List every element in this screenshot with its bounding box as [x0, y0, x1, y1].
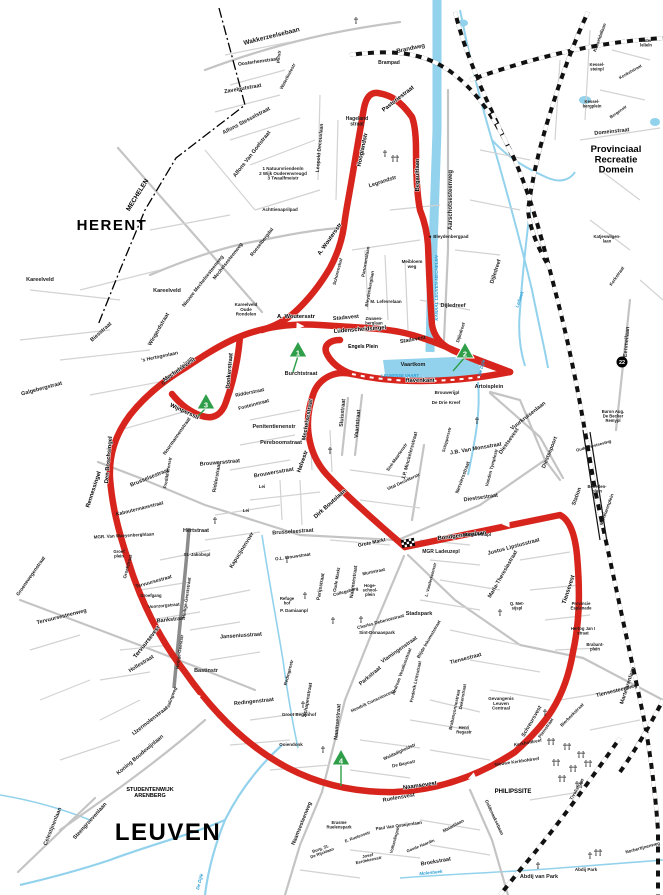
- map-label: IJzermolenstraat: [131, 705, 169, 737]
- map-label: Leibeek: [514, 290, 525, 308]
- church-cross-icon: †: [359, 614, 363, 624]
- map-label: Kaboutermansstraat: [115, 500, 164, 518]
- church-cross-icon: ††: [552, 757, 560, 767]
- map-label: Penitentienenstr: [252, 424, 296, 430]
- map-label: Groot Begijnhof: [282, 712, 317, 717]
- map-label: Brabant-plein: [586, 642, 604, 652]
- map-label: Mechelsevest: [162, 357, 196, 384]
- map-label: Burchtstraat: [285, 371, 318, 377]
- map-label: Dijledreef: [489, 259, 503, 285]
- map-label: Celestijnenlaan: [43, 806, 64, 846]
- church-cross-icon: ††: [558, 773, 566, 783]
- map-label: Hendrik Consciencestr: [350, 688, 397, 713]
- church-cross-icon: †: [588, 850, 592, 860]
- map-label: P. Damiaanpl: [280, 608, 308, 613]
- map-label: Vanden Tymplestr: [484, 448, 499, 487]
- map-label: Waterlindestr: [279, 62, 297, 90]
- church-cross-icon: †: [543, 707, 547, 717]
- map-label: Dijledreef: [440, 303, 465, 309]
- map-label: Hoge-school-plein: [363, 583, 378, 597]
- map-label: putstr: [275, 50, 282, 64]
- map-label: Halvestr: [296, 449, 310, 473]
- map-label: Groefplein: [113, 549, 125, 559]
- map-label: Kerkhofdreef: [514, 738, 543, 748]
- map-label: Zwanen-berglaan: [365, 316, 383, 326]
- map-label: Janseniusstraat: [220, 632, 262, 641]
- map-label: M. Lefevrelaan: [370, 299, 402, 304]
- map-label: Lei: [259, 484, 266, 489]
- map-label: Hollestraat: [128, 654, 155, 674]
- map-label: Hagelandstraat: [346, 116, 369, 127]
- map-label: Kesseldallaan: [592, 22, 607, 52]
- church-cross-icon: †: [475, 415, 479, 425]
- map-label: Bergenstr: [609, 104, 628, 120]
- church-cross-icon: †: [213, 515, 217, 525]
- church-cross-icon: ††: [563, 741, 571, 751]
- map-label: Abdij Park: [575, 867, 598, 872]
- map-label: Blijde Inkomststraat: [416, 619, 442, 659]
- church-cross-icon: ††: [391, 153, 399, 163]
- map-label: Bastinstr: [194, 668, 219, 674]
- map-label: Konkelstraat: [618, 63, 643, 80]
- map-label: Nerviersstraat: [454, 461, 471, 495]
- map-label: Redingenstraat: [234, 697, 275, 707]
- map-label: LEUVEN: [115, 819, 221, 846]
- map-label: Maria-Theresiastraat: [487, 550, 519, 600]
- map-label: Koning Boudewijnlaan: [116, 733, 166, 776]
- map-label: Vlamingenstraat: [380, 635, 419, 665]
- map-label: ProvinciaalRecreatieDomein: [591, 144, 642, 176]
- map-label: JosefEerdekensstr: [354, 850, 382, 865]
- map-label: Sint-Donaaspark: [359, 630, 395, 635]
- km-marker-3: 3: [197, 393, 215, 417]
- map-label: Bierbeekstraat: [559, 702, 585, 728]
- church-cross-icon: ††: [569, 763, 577, 773]
- map-label: Baron Aug.De BeckerRemypl: [602, 409, 624, 423]
- map-label: Muntstraat: [362, 567, 386, 577]
- map-label: Vaartkom: [401, 362, 426, 368]
- map-label: Naamsestraat: [349, 565, 360, 599]
- map-label: Rennessingel: [85, 470, 102, 508]
- map-label: Kessel-steinpl: [590, 62, 606, 72]
- map-label: Kareelveld: [153, 288, 181, 294]
- church-cross-icon: †: [498, 607, 502, 617]
- map-label: Kerkstraat: [608, 265, 625, 287]
- map-label: Matadilaan: [442, 818, 465, 833]
- map-label: Katjeswilgen-laan: [594, 234, 622, 244]
- map-label: Kessel-bergplein: [583, 99, 602, 109]
- map-label: Vaartstraat: [354, 409, 362, 438]
- map-label: Nieuwe Mechelsesteenweg: [181, 254, 225, 308]
- map-label: Pereboomstraat: [260, 440, 302, 446]
- map-label: Station: [571, 486, 583, 506]
- map-label: Parijsstraat: [316, 573, 327, 601]
- map-label: Broekstraat: [420, 856, 451, 867]
- map-label: Tiensesteenweg: [595, 683, 638, 699]
- map-label: Diestsestraat: [463, 493, 498, 504]
- svg-text:3: 3: [204, 401, 208, 410]
- map-label: Stadsvest: [333, 314, 360, 322]
- map-label: STUDENTENWIJKARENBERG: [126, 787, 173, 799]
- map-label: Ridderstraat: [235, 387, 265, 399]
- church-cross-icon: †: [328, 445, 332, 455]
- map-label: Volhardingsln: [389, 825, 401, 853]
- map-label: MECHELEN: [125, 178, 150, 213]
- map-label: Eenmeilaan: [623, 326, 632, 358]
- map-label: Oude Markt: [332, 567, 341, 593]
- church-cross-icon: ††: [584, 758, 592, 768]
- map-label: Tervuursevest: [133, 625, 162, 660]
- church-cross-icon: ††: [594, 847, 602, 857]
- map-label: Galgebergstraat: [21, 381, 63, 398]
- km-marker-1: 1: [289, 341, 307, 372]
- svg-text:2: 2: [463, 350, 467, 359]
- church-cross-icon: †: [303, 590, 307, 600]
- map-label: St.-Jakobspl: [184, 552, 211, 557]
- map-label: Artoisplein: [475, 384, 504, 390]
- leuven-route-map: ††††††††††††††††††††††††††††††††††† 1234…: [0, 0, 663, 895]
- map-label: Alfons Stesselstraat: [222, 106, 272, 136]
- map-label: Wakkerzeelsebaan: [243, 26, 301, 47]
- map-label: MGR Ladeuzepl: [422, 549, 460, 555]
- map-label: Fonteinstraat: [238, 398, 270, 412]
- map-label: Engels Plein: [348, 344, 378, 350]
- map-label: Kareelveld: [26, 277, 54, 283]
- map-label: Groenewegenstraat: [15, 555, 47, 597]
- map-label: Groefgang: [140, 593, 162, 598]
- map-label: Naamsestraat: [333, 704, 342, 741]
- map-label: Mechelsestraat: [301, 399, 314, 441]
- map-label: ProvincieEsplanade: [571, 601, 593, 611]
- map-label: Havenkant: [405, 378, 434, 384]
- map-label: Stadspark: [406, 611, 434, 617]
- church-cross-icon: †: [354, 15, 358, 25]
- map-label: Refugehof: [280, 596, 295, 606]
- municipal-boundary-line: [98, 8, 245, 325]
- church-cross-icon: †: [536, 860, 540, 870]
- map-label: Brouwersstraat: [253, 467, 294, 480]
- map-label: HERENT: [77, 217, 148, 234]
- church-cross-icon: †: [321, 744, 325, 754]
- map-label: Wingerdstraat: [147, 312, 171, 347]
- map-label: Schippersstr: [441, 426, 453, 452]
- map-label: Q. Met-sijspl: [510, 601, 525, 611]
- map-label: Beneden-plein: [587, 484, 607, 494]
- map-label: De Dijle: [195, 873, 204, 891]
- map-label: Parkstraat: [358, 665, 383, 687]
- map-label: Steengroevenlaan: [72, 801, 109, 841]
- map-label: E. Ruelensstr: [344, 830, 371, 844]
- map-label: 's Hertogenlaan: [141, 350, 179, 364]
- map-label: ◄ Bleydenbergpad: [428, 234, 469, 239]
- map-label: Oosterhemstraat: [238, 56, 279, 68]
- svg-text:22: 22: [619, 360, 625, 366]
- map-label: Tiensestraat: [449, 652, 482, 666]
- map-label: Charles Deberiotstraat: [357, 613, 405, 630]
- map-label: HenriRegastr: [456, 725, 472, 735]
- map-label: Waterlelieln: [640, 38, 652, 48]
- svg-text:1: 1: [296, 349, 300, 358]
- map-label: Aarschotsesteenweg: [448, 170, 454, 230]
- map-label: KANAAL LEUVEN-MECHELEN: [434, 255, 439, 321]
- map-label: Noormannenstraat: [162, 416, 193, 456]
- map-canvas: ††††††††††††††††††††††††††††††††††† 1234…: [0, 0, 663, 895]
- map-label: De Drie Kreef: [432, 400, 461, 405]
- map-label: Leopold Decouxlaan: [315, 123, 325, 172]
- map-label: Legrandstr: [368, 174, 398, 189]
- church-cross-icon: †: [383, 148, 387, 158]
- map-label: Diestsevest: [498, 427, 521, 456]
- map-label: Brouwerijpl: [435, 390, 460, 395]
- map-label: Lei: [243, 508, 250, 513]
- map-label: Voorzorgstraat: [148, 602, 180, 610]
- map-label: Margarethapl: [463, 532, 491, 537]
- map-label: Stadsvest: [400, 335, 427, 345]
- map-label: Brampad: [378, 60, 400, 66]
- map-label: PHILIPSSITE: [495, 789, 532, 795]
- church-cross-icon: ††: [547, 736, 555, 746]
- map-label: KareelveldOudeRondelen: [235, 302, 258, 317]
- map-label: 1 Natuurvriendenln2 Wijk Ouderenvreugd3 …: [259, 166, 307, 181]
- map-label: Pastoriestraat: [381, 85, 415, 114]
- map-label: Burg. St.De Rijcklaan: [308, 842, 335, 860]
- map-label: Hertstraat: [183, 528, 209, 534]
- map-label: De Bayostr: [392, 759, 417, 769]
- map-label: Zavelputstraat: [224, 83, 262, 95]
- map-label: GevangenisLeuvenCentraal: [488, 696, 514, 711]
- map-label: Abdij van Park: [520, 874, 559, 880]
- map-label: Dirk Boutslaan: [313, 488, 348, 520]
- km-marker-4: 4: [332, 749, 350, 786]
- route-arrow-icon: [189, 343, 200, 354]
- map-label: Norbertijnenweg: [625, 840, 661, 854]
- map-label: Frederik Lintsstraat: [409, 660, 423, 703]
- church-cross-icon: †: [331, 615, 335, 625]
- map-label: Achttienaprilpad: [262, 207, 298, 212]
- map-label: O.L. Vrouwstraat: [275, 551, 312, 561]
- map-label: Ooiendonk: [279, 742, 303, 747]
- map-label: Oude Diestsestwg: [575, 438, 612, 452]
- map-label: Begaultlaan: [415, 158, 421, 191]
- map-label: L. Vanderkelenstr: [424, 562, 438, 597]
- map-label: A. Woutersstr: [277, 314, 316, 320]
- map-label: Valingweg: [165, 686, 177, 709]
- map-label: Ridderstraat: [212, 462, 223, 492]
- map-label: Dijledreef: [455, 322, 466, 344]
- map-label: ErasmeRuelenspark: [326, 820, 352, 830]
